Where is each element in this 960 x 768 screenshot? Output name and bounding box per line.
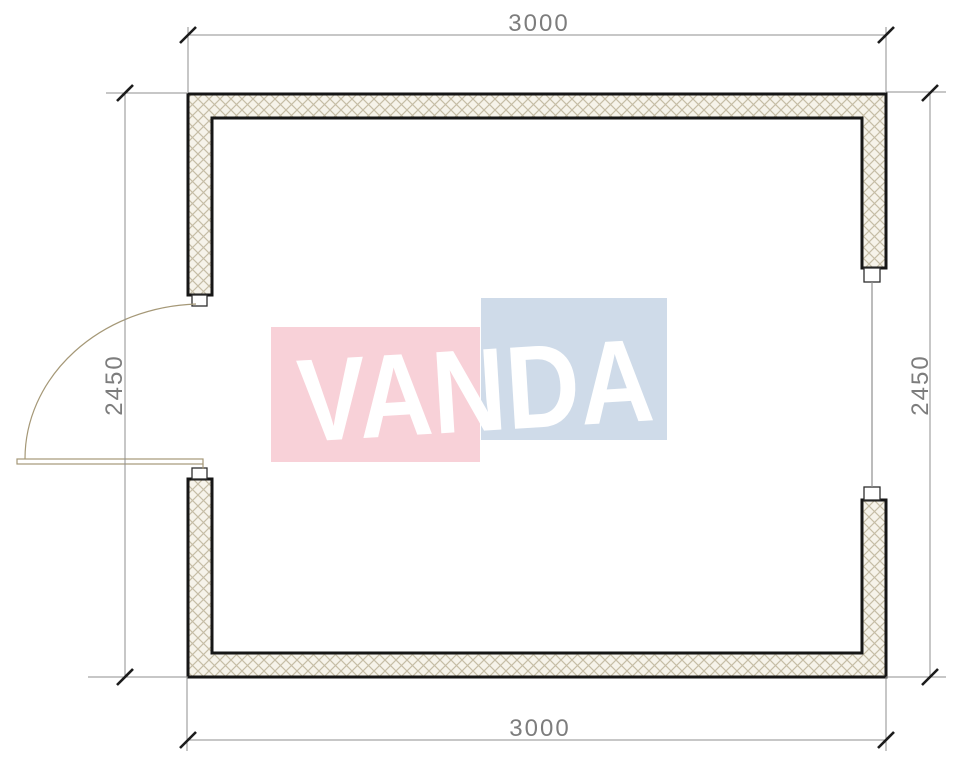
dimension-top: 3000 xyxy=(180,10,894,92)
watermark-logo: VANDA xyxy=(271,298,667,468)
window-jamb-top xyxy=(864,268,880,282)
dimension-value-left: 2450 xyxy=(101,354,128,415)
door-leaf xyxy=(17,459,203,464)
dimension-value-bottom: 3000 xyxy=(509,715,570,742)
wall-bottom-and-lower-legs xyxy=(188,479,886,677)
dimension-value-right: 2450 xyxy=(907,354,934,415)
wall-top-and-upper-legs xyxy=(188,94,886,295)
watermark-text: VANDA xyxy=(294,314,657,467)
floor-plan-drawing: VANDA 3000 3000 2450 xyxy=(0,0,960,768)
window-jamb-bottom xyxy=(864,487,880,500)
dimension-right: 2450 xyxy=(886,85,946,685)
dimension-value-top: 3000 xyxy=(508,10,569,37)
floor-plan-canvas: VANDA 3000 3000 2450 xyxy=(0,0,960,768)
door-jamb-bottom xyxy=(192,468,207,479)
dimension-bottom: 3000 xyxy=(180,677,894,751)
dimension-left: 2450 xyxy=(88,85,188,685)
